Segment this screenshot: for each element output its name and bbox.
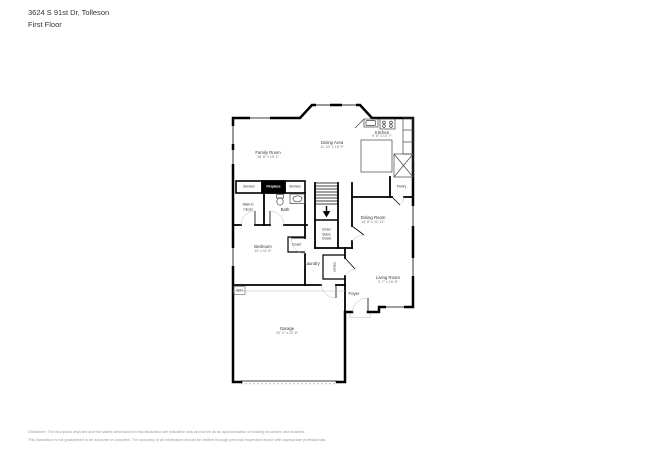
living-room-dims: 9' 7" x 10' 8" bbox=[378, 281, 398, 285]
bath-label: Bath bbox=[281, 208, 290, 212]
water-heater-label: W/H bbox=[236, 289, 242, 292]
foyer-label: Foyer bbox=[349, 292, 360, 296]
under-stairs-closet-label-3: Closet bbox=[322, 237, 331, 240]
kitchen-island bbox=[361, 140, 392, 172]
dining-room-dims: 14' 8" x 12' 11" bbox=[361, 221, 384, 225]
garage-dims: 20' 2" x 20' 8" bbox=[276, 332, 298, 336]
fireplace-label: Fireplace bbox=[267, 186, 281, 189]
walk-in-closet-label-2: Closet bbox=[243, 208, 252, 211]
stairs-down-arrow-icon bbox=[324, 206, 330, 216]
kitchen-counters bbox=[394, 118, 413, 177]
floor-title: First Floor bbox=[28, 20, 62, 29]
kitchen-dims: 9' 8" x 10' 7" bbox=[372, 135, 392, 139]
floor-plan: Family Room 15' 8" x 15' 1" Dining Area … bbox=[228, 98, 418, 390]
garage-door bbox=[241, 381, 337, 384]
front-step bbox=[350, 314, 370, 318]
dining-area-dims: 11' 10" x 15' 9" bbox=[320, 146, 343, 150]
family-room-dims: 15' 8" x 15' 1" bbox=[257, 156, 279, 160]
bedroom-dims: 10' x 11' 6" bbox=[254, 250, 271, 254]
disclaimer-line-2: This illustration is not guaranteed to b… bbox=[28, 438, 326, 442]
kitchen-sink-icon bbox=[355, 119, 378, 128]
stove-icon bbox=[380, 119, 395, 129]
toilet-icon bbox=[277, 195, 284, 206]
disclaimer-line-1: Disclaimer: The floorplans depicted and … bbox=[28, 430, 305, 434]
shelves-right-label: Shelves bbox=[289, 186, 301, 189]
foyer-closet-label: Closet bbox=[332, 262, 335, 271]
laundry-label: Laundry bbox=[304, 262, 320, 266]
walk-in-closet-label-1: Walk-in bbox=[243, 203, 254, 206]
address-title: 3624 S 91st Dr, Tolleson bbox=[28, 8, 109, 17]
bath-sink-icon bbox=[290, 194, 305, 204]
bedroom-closet-label: Closet bbox=[292, 243, 301, 246]
floor-plan-page: 3624 S 91st Dr, Tolleson First Floor bbox=[0, 0, 650, 460]
pantry-label: Pantry bbox=[397, 185, 407, 188]
shelves-left-label: Shelves bbox=[243, 186, 255, 189]
